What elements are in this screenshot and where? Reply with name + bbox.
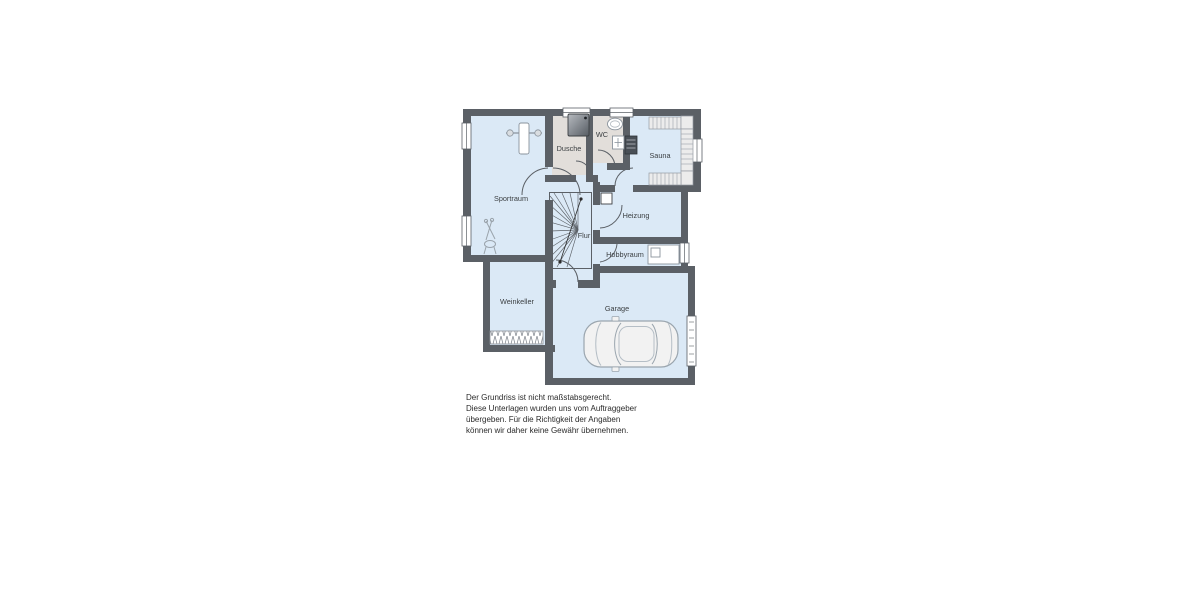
wine-rack-icon bbox=[490, 331, 543, 344]
shower-icon bbox=[568, 114, 589, 136]
desk-icon bbox=[648, 245, 679, 264]
label-weinkeller: Weinkeller bbox=[500, 297, 534, 306]
window-icon bbox=[610, 108, 633, 117]
disclaimer-line: Der Grundriss ist nicht maßstabsgerecht. bbox=[466, 392, 696, 403]
disclaimer-text: Der Grundriss ist nicht maßstabsgerecht.… bbox=[466, 392, 696, 436]
disclaimer-line: übergeben. Für die Richtigkeit der Angab… bbox=[466, 414, 696, 425]
label-sauna: Sauna bbox=[649, 151, 671, 160]
window-icon bbox=[680, 243, 689, 263]
floor-plan: Sportraum Dusche WC Sauna Heizung Flur H… bbox=[0, 0, 1200, 600]
label-hobbyraum: Hobbyraum bbox=[606, 250, 644, 259]
label-dusche: Dusche bbox=[557, 144, 582, 153]
window-icon bbox=[462, 123, 471, 149]
garage-door-icon bbox=[687, 316, 696, 366]
label-heizung: Heizung bbox=[623, 211, 650, 220]
toilet-icon bbox=[613, 136, 625, 149]
label-sportraum: Sportraum bbox=[494, 194, 528, 203]
disclaimer-line: können wir daher keine Gewähr übernehmen… bbox=[466, 425, 696, 436]
window-icon bbox=[462, 216, 471, 246]
shaft-icon bbox=[601, 193, 612, 204]
label-wc: WC bbox=[596, 130, 608, 139]
window-icon bbox=[692, 139, 702, 162]
page: Sportraum Dusche WC Sauna Heizung Flur H… bbox=[0, 0, 1200, 600]
sink-icon bbox=[608, 118, 623, 130]
label-garage: Garage bbox=[605, 304, 629, 313]
disclaimer-line: Diese Unterlagen wurden uns vom Auftragg… bbox=[466, 403, 696, 414]
car-icon bbox=[584, 317, 678, 372]
label-flur: Flur bbox=[578, 231, 591, 240]
sauna-heater-icon bbox=[625, 136, 637, 154]
